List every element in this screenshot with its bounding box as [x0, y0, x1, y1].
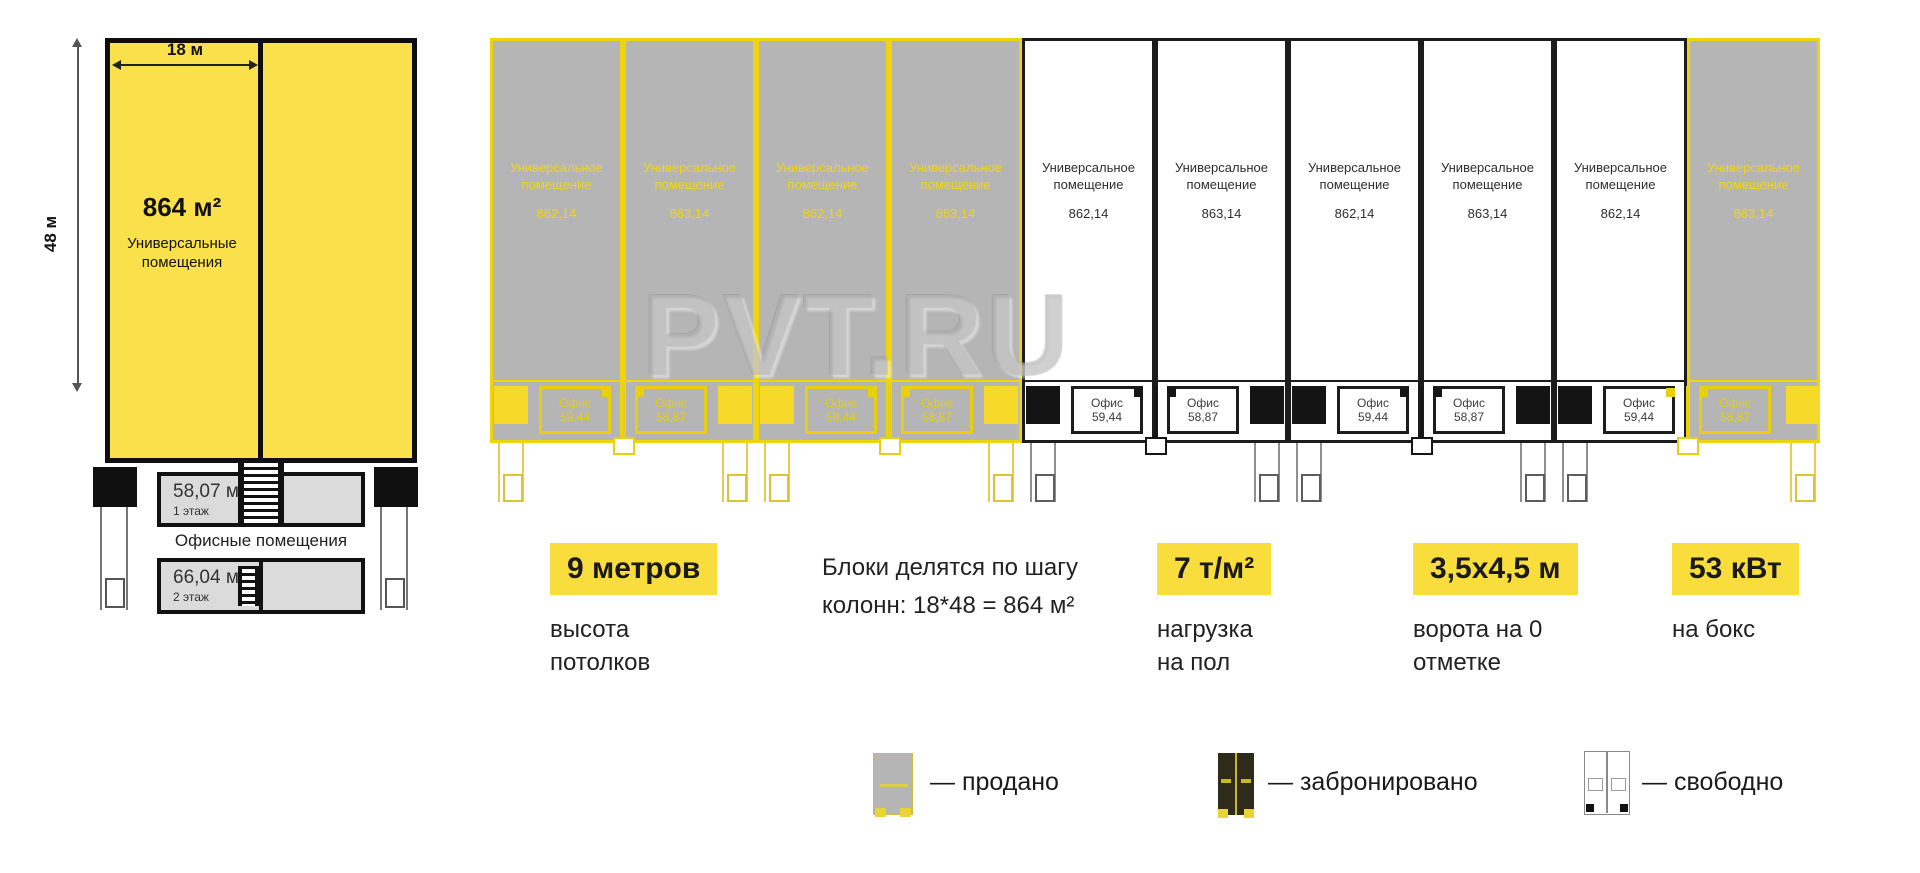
unit-block[interactable]: Универсальноепомещение863,14Офис58,87	[623, 38, 756, 443]
spec-floor-load: 7 т/м² нагрузка на пол	[1157, 543, 1297, 679]
unit-block[interactable]: Универсальноепомещение862,14Офис59,44	[1554, 38, 1687, 443]
note-line1: Блоки делятся по шагу	[822, 549, 1078, 587]
legend-booked-label: — забронировано	[1268, 768, 1478, 797]
unit-block[interactable]: Универсальноепомещение863,14Офис58,87	[1687, 38, 1820, 443]
spec-value-badge: 53 кВт	[1672, 543, 1799, 595]
warehouse-plan-infographic: 48 м 18 м 864 м² Универсальные помещения…	[0, 0, 1920, 873]
unit-area-value: 863,14	[892, 205, 1019, 222]
dock-bumper	[503, 474, 523, 502]
hall-area-label: 864 м²	[106, 192, 258, 223]
spec-label: нагрузка на пол	[1157, 613, 1277, 679]
column-marker	[984, 386, 1018, 424]
column-marker	[1292, 386, 1326, 424]
spec-label: ворота на 0 отметке	[1413, 613, 1573, 679]
legend-sold-icon	[873, 753, 913, 815]
dock-bumper	[727, 474, 747, 502]
dock-bumper	[385, 578, 405, 608]
column-marker	[1026, 386, 1060, 424]
stairwell-icon	[238, 460, 284, 526]
dock-bumper	[1301, 474, 1321, 502]
offices-caption: Офисные помещения	[140, 531, 382, 551]
column-marker	[374, 467, 418, 507]
office-floor2-area: 66,04 м²	[173, 567, 361, 589]
hall-name-label: Универсальные помещения	[108, 234, 256, 272]
unit-block[interactable]: Универсальноепомещение863,14Офис58,87	[1421, 38, 1554, 443]
unit-block[interactable]: Универсальноепомещение862,14Офис59,44	[490, 38, 623, 443]
dock-bumper	[993, 474, 1013, 502]
unit-label: Универсальноепомещение863,14	[1690, 159, 1817, 222]
width-dimension-arrow	[118, 64, 252, 66]
unit-label: Универсальноепомещение862,14	[759, 159, 886, 222]
arrow-head-left-icon	[112, 60, 121, 70]
unit-area-value: 862,14	[1557, 205, 1684, 222]
spec-value-badge: 7 т/м²	[1157, 543, 1271, 595]
unit-block[interactable]: Универсальноепомещение862,14Офис59,44	[756, 38, 889, 443]
unit-area-value: 863,14	[1690, 205, 1817, 222]
column-marker	[1558, 386, 1592, 424]
unit-block[interactable]: Универсальноепомещение862,14Офис59,44	[1022, 38, 1155, 443]
entrance-vestibule-icon	[1397, 386, 1445, 444]
spec-value-badge: 3,5х4,5 м	[1413, 543, 1578, 595]
unit-block[interactable]: Универсальноепомещение862,14Офис59,44	[1288, 38, 1421, 443]
entrance-vestibule-icon	[1131, 386, 1179, 444]
spec-label: на бокс	[1672, 613, 1832, 646]
spec-power: 53 кВт на бокс	[1672, 543, 1832, 646]
dock-bumper	[1567, 474, 1587, 502]
unit-area-value: 862,14	[493, 205, 620, 222]
dock-bumper	[1259, 474, 1279, 502]
column-marker	[760, 386, 794, 424]
unit-label: Универсальноепомещение862,14	[493, 159, 620, 222]
unit-area-value: 863,14	[1158, 205, 1285, 222]
spec-gates: 3,5х4,5 м ворота на 0 отметке	[1413, 543, 1613, 679]
column-marker	[93, 467, 137, 507]
dock-bumper	[1035, 474, 1055, 502]
spec-label: высота потолков	[550, 613, 720, 679]
stairwell-icon	[238, 566, 259, 606]
dock-bumper	[105, 578, 125, 608]
unit-label: Универсальноепомещение863,14	[1158, 159, 1285, 222]
unit-label: Универсальноепомещение862,14	[1291, 159, 1418, 222]
unit-label: Универсальноепомещение863,14	[1424, 159, 1551, 222]
legend-free-icon	[1584, 751, 1630, 815]
arrow-head-right-icon	[249, 60, 258, 70]
entrance-vestibule-icon	[599, 386, 647, 444]
entrance-vestibule-icon	[1663, 386, 1711, 444]
note-line2: колонн: 18*48 = 864 м²	[822, 587, 1078, 625]
unit-block[interactable]: Универсальноепомещение863,14Офис58,87	[889, 38, 1022, 443]
office-floor2-floor: 2 этаж	[173, 590, 361, 604]
column-marker	[494, 386, 528, 424]
legend-free-label: — свободно	[1642, 768, 1783, 797]
spec-value-badge: 9 метров	[550, 543, 717, 595]
dock-bumper	[1795, 474, 1815, 502]
dock-bumper	[1525, 474, 1545, 502]
unit-label: Универсальноепомещение863,14	[892, 159, 1019, 222]
unit-label: Универсальноепомещение862,14	[1557, 159, 1684, 222]
dock-bumper	[769, 474, 789, 502]
column-marker	[1516, 386, 1550, 424]
office-floor2-divider	[259, 558, 263, 614]
column-grid-note: Блоки делятся по шагу колонн: 18*48 = 86…	[822, 549, 1078, 625]
unit-area-value: 862,14	[759, 205, 886, 222]
column-marker	[1250, 386, 1284, 424]
unit-label: Универсальноепомещение862,14	[1025, 159, 1152, 222]
column-marker	[718, 386, 752, 424]
unit-area-value: 862,14	[1291, 205, 1418, 222]
width-dimension-label: 18 м	[116, 40, 254, 60]
unit-area-value: 863,14	[1424, 205, 1551, 222]
column-marker	[1786, 386, 1820, 424]
unit-label: Универсальноепомещение863,14	[626, 159, 753, 222]
legend-sold-label: — продано	[930, 768, 1059, 797]
unit-block[interactable]: Универсальноепомещение863,14Офис58,87	[1155, 38, 1288, 443]
unit-area-value: 862,14	[1025, 205, 1152, 222]
hall-divider-wall	[258, 38, 263, 463]
legend-booked-icon	[1218, 753, 1254, 815]
entrance-vestibule-icon	[865, 386, 913, 444]
spec-ceiling-height: 9 метров высота потолков	[550, 543, 730, 679]
unit-area-value: 863,14	[626, 205, 753, 222]
